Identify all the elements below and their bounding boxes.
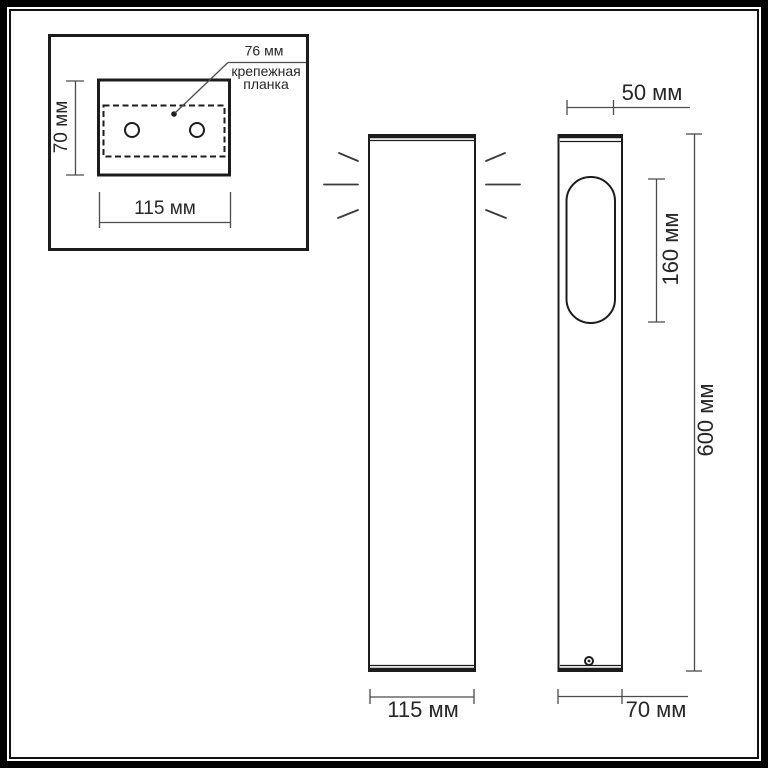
front-view — [324, 135, 520, 704]
side-body-outline — [559, 135, 623, 671]
light-ray-left-bottom — [338, 210, 358, 218]
window-height-label: 160 мм — [658, 212, 684, 285]
total-height-label: 600 мм — [693, 383, 719, 456]
light-rays-left — [324, 153, 358, 218]
inset-height-label: 70 мм — [51, 101, 73, 154]
mounting-plate-outline — [99, 80, 230, 175]
light-ray-right-bottom — [486, 210, 506, 218]
light-rays-right — [486, 153, 520, 218]
callout-value-label: 76 мм — [245, 45, 284, 58]
side-bottom-width-label: 70 мм — [626, 697, 687, 723]
mounting-hole-left — [125, 123, 139, 137]
light-ray-right-top — [486, 153, 505, 161]
light-ray-left-top — [339, 153, 358, 161]
mounting-hole-right — [190, 123, 204, 137]
front-width-label: 115 мм — [387, 697, 458, 723]
callout-caption-label: крепежная планка — [231, 65, 300, 91]
side-view — [558, 100, 703, 704]
callout-caption-line2: планка — [231, 78, 300, 91]
dimension-drawing — [0, 0, 768, 768]
screw-center-dot — [588, 660, 591, 663]
front-body-outline — [369, 135, 475, 671]
side-top-width-label: 50 мм — [622, 80, 683, 106]
inset-width-label: 115 мм — [134, 198, 196, 220]
